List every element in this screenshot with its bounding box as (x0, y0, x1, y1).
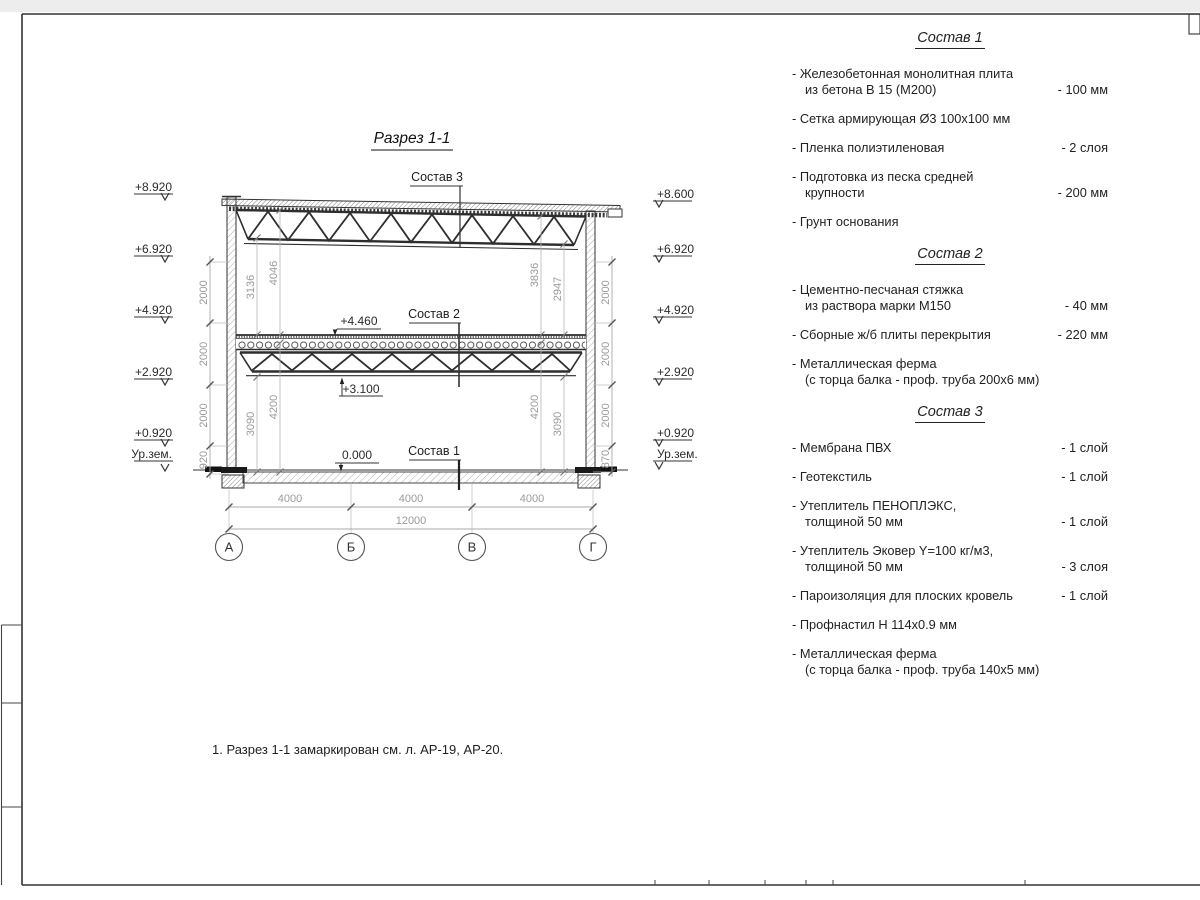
list-item: - Металлическая ферма (с торца балка - п… (792, 356, 1108, 388)
elevation-mark: +6.920 (134, 242, 173, 262)
list-item: - Мембрана ПВХ - 1 слой (792, 440, 1108, 456)
elevation-mark: +4.920 (134, 303, 173, 323)
roof-end-cap (608, 209, 622, 217)
dim-value: 870 (600, 450, 612, 468)
elevation-value: +8.600 (657, 187, 694, 201)
item-value: - 200 мм (1058, 185, 1108, 201)
composition-title-text: Состав 2 (915, 246, 984, 265)
elevation-value: Ур.зем. (657, 447, 698, 461)
elevation-mark: +8.920 (134, 180, 173, 200)
foundation-right (578, 475, 600, 488)
mid-truss (240, 353, 582, 376)
callout-label: Состав 2 (408, 307, 460, 321)
item-text: - Сетка армирующая Ø3 100x100 мм (792, 111, 1100, 127)
item-text: - Цементно-песчаная стяжка из раствора м… (792, 282, 1057, 314)
item-text: - Пленка полиэтиленовая (792, 140, 1053, 156)
dim-value: 2000 (600, 280, 612, 304)
item-value: - 3 слоя (1061, 559, 1108, 575)
dims-bottom: 4000 4000 4000 12000 А Б В Г (216, 483, 607, 561)
list-item: - Утеплитель Эковер Y=100 кг/м3, толщино… (792, 543, 1108, 575)
item-value: - 2 слоя (1061, 140, 1108, 156)
dim-value: 4000 (520, 493, 544, 505)
elevation-value: +4.920 (135, 303, 172, 317)
roof-assembly (222, 197, 622, 250)
dim-value: 3090 (245, 412, 257, 436)
elevation-inline-mid-bottom: +3.100 (339, 378, 383, 397)
hollow-core-slab (237, 339, 585, 349)
item-text: - Металлическая ферма (с торца балка - п… (792, 356, 1100, 388)
composition-title-text: Состав 3 (915, 404, 984, 423)
list-item: - Пленка полиэтиленовая - 2 слоя (792, 140, 1108, 156)
item-text: - Пароизоляция для плоских кровель (792, 588, 1053, 604)
roof-truss (236, 210, 586, 250)
item-value: - 1 слой (1061, 469, 1108, 485)
elevation-mark: +0.920 (134, 426, 173, 446)
composition-3-title: Состав 3 (792, 404, 1108, 420)
item-text: - Сборные ж/б плиты перекрытия (792, 327, 1050, 343)
elevation-mark: +2.920 (653, 365, 694, 385)
axis-label: Г (589, 540, 596, 555)
item-value: - 1 слой (1061, 588, 1108, 604)
dim-value: 3090 (552, 412, 564, 436)
list-item: - Грунт основания (792, 214, 1108, 230)
ground-level (193, 467, 628, 489)
list-item: - Железобетонная монолитная плита из бет… (792, 66, 1108, 98)
axis-bubbles: А Б В Г (216, 534, 607, 561)
axis-label: Б (347, 540, 356, 555)
dim-value: 2000 (198, 403, 210, 427)
axis-label: В (468, 540, 477, 555)
dim-value: 4200 (268, 395, 280, 419)
elevation-value: +6.920 (135, 242, 172, 256)
item-text: - Профнастил Н 114x0.9 мм (792, 617, 1100, 633)
elevation-value: +4.460 (340, 314, 377, 328)
list-item: - Цементно-песчаная стяжка из раствора м… (792, 282, 1108, 314)
item-text: - Мембрана ПВХ (792, 440, 1053, 456)
item-text: - Утеплитель Эковер Y=100 кг/м3, толщино… (792, 543, 1053, 575)
axis-label: А (225, 540, 234, 555)
elevation-mark: +8.600 (653, 187, 694, 207)
dim-value: 2000 (600, 403, 612, 427)
elevation-value: 0.000 (342, 448, 372, 462)
elevation-inline-floor: 0.000 (335, 448, 379, 472)
item-text: - Геотекстиль (792, 469, 1053, 485)
composition-2-title: Состав 2 (792, 246, 1108, 262)
composition-1-title: Состав 1 (792, 30, 1108, 46)
left-stamp-boxes (2, 625, 23, 885)
elevation-value: +3.100 (342, 382, 379, 396)
wall-base-left (221, 467, 247, 473)
dim-value: 2000 (198, 342, 210, 366)
dim-value: 4000 (399, 493, 423, 505)
item-text: - Грунт основания (792, 214, 1100, 230)
list-item: - Профнастил Н 114x0.9 мм (792, 617, 1108, 633)
item-text: - Утеплитель ПЕНОПЛЭКС, толщиной 50 мм (792, 498, 1053, 530)
item-value: - 100 мм (1058, 82, 1108, 98)
item-text: - Железобетонная монолитная плита из бет… (792, 66, 1050, 98)
elevation-value: +0.920 (657, 426, 694, 440)
elevation-value: +0.920 (135, 426, 172, 440)
item-value: - 1 слой (1061, 440, 1108, 456)
mid-floor (236, 335, 586, 376)
list-item: - Утеплитель ПЕНОПЛЭКС, толщиной 50 мм -… (792, 498, 1108, 530)
foundation-left (222, 475, 244, 488)
item-text: - Подготовка из песка средней крупности (792, 169, 1050, 201)
item-text: - Металлическая ферма (с торца балка - п… (792, 646, 1100, 678)
list-item: - Геотекстиль - 1 слой (792, 469, 1108, 485)
sheet-note: 1. Разрез 1-1 замаркирован см. л. АР-19,… (212, 742, 503, 757)
list-item: - Подготовка из песка средней крупности … (792, 169, 1108, 201)
dim-value: 2000 (198, 280, 210, 304)
dim-value: 4200 (529, 395, 541, 419)
dim-value: 3136 (245, 275, 257, 299)
elevation-mark: +6.920 (653, 242, 694, 262)
elevation-mark: Ур.зем. (653, 447, 698, 469)
list-item: - Металлическая ферма (с торца балка - п… (792, 646, 1108, 678)
drawing-title-text: Разрез 1-1 (374, 130, 451, 147)
elevation-mark: +0.920 (653, 426, 694, 446)
wall-right (586, 211, 595, 470)
callout-label: Состав 1 (408, 444, 460, 458)
callout-label: Состав 3 (411, 170, 463, 184)
compositions-panel: Состав 1 - Железобетонная монолитная пли… (792, 28, 1108, 691)
elevation-value: +2.920 (657, 365, 694, 379)
dim-value: 920 (198, 451, 210, 469)
elevation-marks-right: +8.600 +6.920 +4.920 +2.920 +0.920 Ур.зе… (653, 187, 698, 469)
ground-slab (243, 472, 578, 483)
list-item: - Пароизоляция для плоских кровель - 1 с… (792, 588, 1108, 604)
elevation-inline-mid-top: +4.460 (333, 314, 381, 336)
dim-value: 4046 (268, 261, 280, 285)
item-value: - 1 слой (1061, 514, 1108, 530)
item-value: - 40 мм (1065, 298, 1108, 314)
elevation-value: Ур.зем. (131, 447, 172, 461)
composition-title-text: Состав 1 (915, 30, 984, 49)
dim-total-value: 12000 (396, 515, 427, 527)
elevation-mark: +4.920 (653, 303, 694, 323)
callouts: Состав 3 Состав 2 Состав 1 +4.460 +3.100 (333, 170, 463, 490)
elevation-value: +6.920 (657, 242, 694, 256)
elevation-value: +2.920 (135, 365, 172, 379)
elevation-value: +4.920 (657, 303, 694, 317)
elevation-mark: Ур.зем. (131, 447, 173, 471)
dim-value: 3836 (529, 263, 541, 287)
item-value: - 220 мм (1058, 327, 1108, 343)
dim-value: 2947 (552, 277, 564, 301)
dim-value: 4000 (278, 493, 302, 505)
list-item: - Сетка армирующая Ø3 100x100 мм (792, 111, 1108, 127)
dim-value: 2000 (600, 342, 612, 366)
dim-chain-left: 2000 2000 2000 920 (198, 256, 229, 479)
elevation-value: +8.920 (135, 180, 172, 194)
elevation-mark: +2.920 (134, 365, 173, 385)
elevation-marks-left: +8.920 +6.920 +4.920 +2.920 +0.920 Ур.зе… (131, 180, 173, 471)
wall-left (227, 197, 236, 470)
list-item: - Сборные ж/б плиты перекрытия - 220 мм (792, 327, 1108, 343)
drawing-title: Разрез 1-1 (371, 130, 453, 150)
dim-chain-right: 2000 2000 2000 870 (593, 256, 616, 477)
